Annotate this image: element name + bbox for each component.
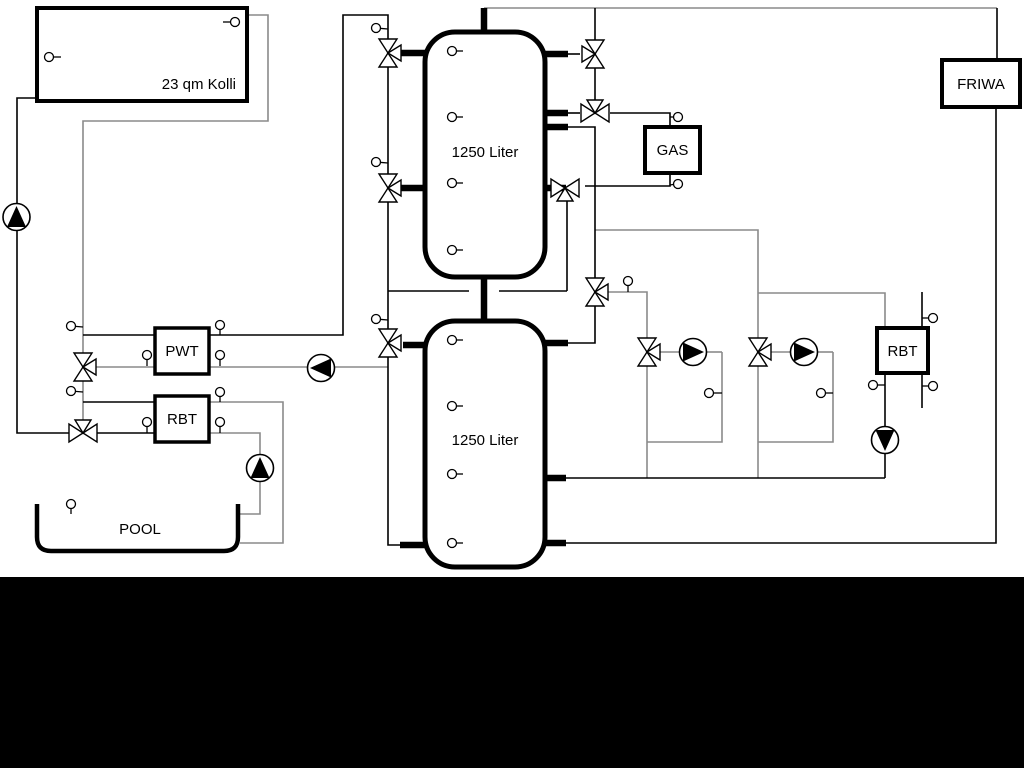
bottom-black-band <box>0 577 1024 768</box>
pump-circuit-2 <box>791 339 818 366</box>
tank-bottom-label: 1250 Liter <box>425 433 545 448</box>
pump-pool <box>247 455 274 482</box>
pump-solar-secondary <box>308 355 335 382</box>
sensor-pwt-right-bottom <box>216 351 225 367</box>
sensor-pool <box>67 500 76 515</box>
sensor-valve-bottom <box>372 315 389 324</box>
pump-circuit-1 <box>680 339 707 366</box>
pump-solar <box>3 204 30 231</box>
valve-tank-charge <box>586 278 608 306</box>
sensor-solar-line-2 <box>67 387 84 396</box>
gas-label: GAS <box>645 143 700 158</box>
pool-label: POOL <box>90 522 190 537</box>
sensor-heating-tap-1 <box>922 314 938 323</box>
rbt-right-label: RBT <box>877 344 928 359</box>
valve-tank-left-top <box>379 39 401 67</box>
valve-tank-left-bottom <box>379 329 401 357</box>
piping-diagram: 23 qm Kolli 1250 Liter 1250 Liter PWT RB… <box>0 0 1024 768</box>
sensor-pwt-right-top <box>216 321 225 336</box>
pipes-friwa <box>565 8 997 543</box>
sensor-solar-line-1 <box>67 322 84 331</box>
sensor-charge-valve <box>624 277 633 293</box>
sensor-gas-top <box>670 113 683 122</box>
pipe-collector-flow <box>17 98 155 433</box>
pump-loop-2 <box>758 352 833 478</box>
sensor-loop-1 <box>705 389 723 398</box>
pump-loop-1 <box>647 352 722 478</box>
pump-rbt-right <box>872 427 899 454</box>
sensor-pwt-left-bottom <box>143 351 152 367</box>
valve-gas-return <box>551 179 579 201</box>
tank-top-label: 1250 Liter <box>425 145 545 160</box>
valve-solar-pwt <box>74 353 96 381</box>
friwa-label: FRIWA <box>942 77 1020 92</box>
sensor-loop-2 <box>817 389 834 398</box>
sensor-rbt-right-top <box>216 388 225 403</box>
sensor-rbt-left-bottom <box>143 418 152 434</box>
sensor-heating-tap-2 <box>922 382 938 391</box>
valve-gas-mid <box>581 100 609 122</box>
pipe-to-rbt-right <box>758 293 885 328</box>
sensor-rbt-right-bottom <box>216 418 225 434</box>
sensor-valve-mid <box>372 158 389 167</box>
sensor-valve-top <box>372 24 389 33</box>
valve-gas-top <box>582 40 604 68</box>
pwt-label: PWT <box>155 344 209 359</box>
valve-tank-left-mid <box>379 174 401 202</box>
pipes-tank-charge <box>568 127 595 343</box>
collector-label: 23 qm Kolli <box>111 77 236 92</box>
valve-circuit-2 <box>749 338 771 366</box>
sensor-rbt-right-pump <box>869 381 886 390</box>
pipe-branch-circuit2 <box>595 230 758 352</box>
valve-pool-return <box>69 420 97 442</box>
rbt-left-label: RBT <box>155 412 209 427</box>
sensor-gas-bottom <box>670 180 683 189</box>
valve-circuit-1 <box>638 338 660 366</box>
